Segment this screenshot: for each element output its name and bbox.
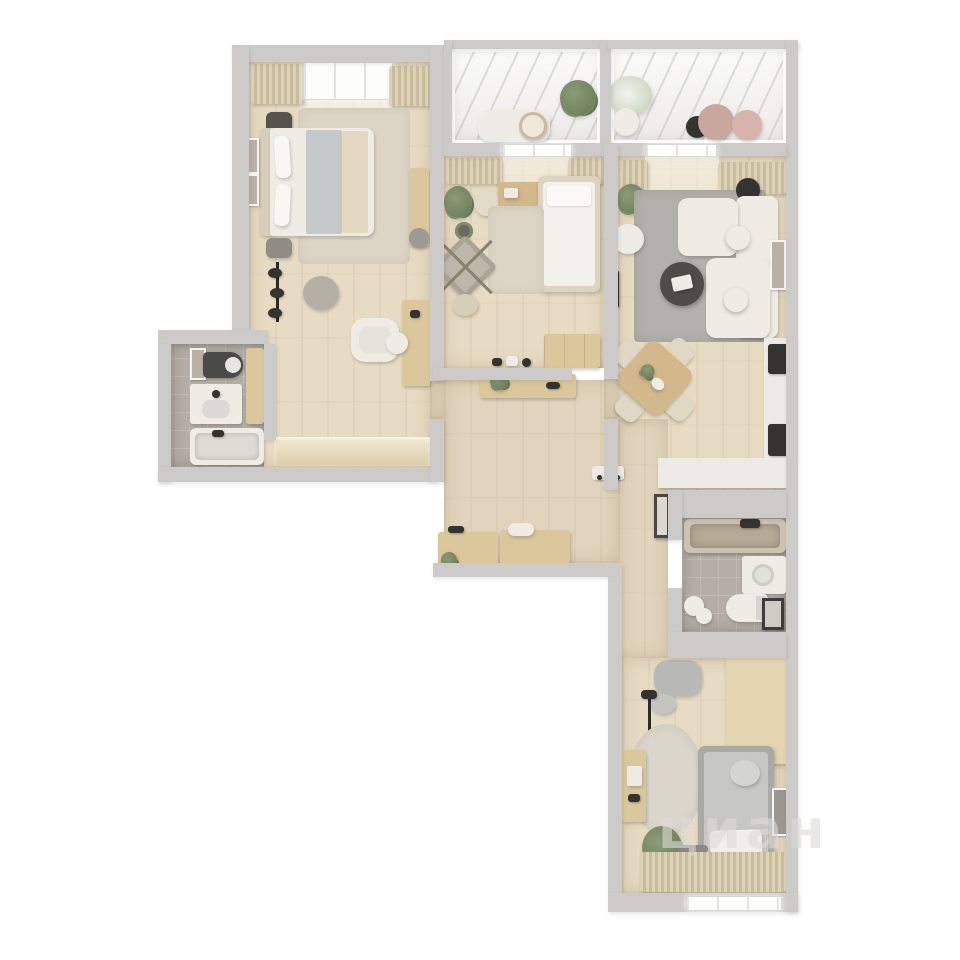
master-curtain-left — [251, 64, 305, 104]
sofa-round-pillow-1 — [726, 226, 750, 250]
toy-1 — [492, 358, 502, 366]
kids-plant — [444, 186, 472, 218]
master-bed — [270, 128, 374, 236]
master-skylight-window — [303, 62, 393, 100]
master-bed-blanket-gray — [306, 130, 342, 234]
tub-inner — [195, 433, 259, 460]
master-wardrobe — [274, 437, 430, 466]
kids-teepee — [436, 238, 496, 296]
master-bed-pillow-2 — [274, 184, 291, 227]
bedroom2-curtain-bottom — [640, 852, 786, 892]
hallway-console-decor — [546, 382, 560, 389]
bath1-faucet — [212, 390, 220, 398]
living-balcony-window — [645, 144, 717, 157]
bath2-tub-inner — [690, 524, 780, 548]
bedroom2-bed — [698, 746, 774, 864]
living-coffee-table — [660, 262, 704, 306]
kids-curtain-left — [446, 158, 502, 184]
wall-kids-right — [604, 143, 618, 379]
rack-item-1 — [268, 268, 282, 278]
wall-corridor-left — [608, 577, 622, 893]
shoes — [448, 526, 464, 533]
bedroom2-laptop — [627, 766, 642, 786]
bath2-vanity — [742, 556, 786, 594]
kids-rug — [488, 206, 544, 294]
kids-bed-pillow — [547, 186, 591, 206]
toilet-bowl — [225, 357, 241, 373]
bench-cushion — [508, 523, 534, 536]
wall-exterior-right — [786, 40, 798, 912]
wall-bath2-bottom — [668, 632, 786, 658]
wall-bath1-top — [158, 330, 268, 344]
wall-bath2-left-upper — [668, 490, 682, 540]
wall-bath1-left — [158, 344, 171, 482]
bath1-sink-counter — [190, 384, 242, 424]
wall-master-right — [430, 45, 444, 381]
master-bed-pillow-1 — [274, 136, 292, 179]
toy-3 — [522, 358, 531, 367]
wall-balcony-right-top — [608, 40, 798, 49]
balcony-left-plant — [560, 80, 596, 116]
master-curtain-right — [389, 66, 431, 106]
bath2-sink — [752, 564, 774, 586]
kids-desk-papers — [504, 188, 518, 198]
master-bed-throw-cream — [342, 131, 368, 233]
bath1-toilet — [203, 352, 243, 378]
balcony-right-lounge-1 — [698, 104, 734, 140]
coffee-table-book — [671, 274, 693, 292]
bedroom2-desk — [622, 750, 646, 822]
kids-desk — [498, 182, 540, 208]
wall-balcony-divider — [600, 40, 611, 144]
master-nightstand-bottom — [266, 238, 292, 258]
master-pouf — [303, 276, 339, 310]
kids-bed — [538, 176, 600, 292]
wall-dining-hall — [604, 419, 618, 490]
bedroom2-throw-pillow — [730, 760, 760, 786]
master-vanity-stool — [386, 332, 408, 354]
corridor-floor — [618, 419, 668, 658]
vanity-decor — [410, 310, 420, 318]
wall-bath2-left-lower — [668, 588, 682, 632]
doorway-master — [430, 381, 444, 419]
balcony-left-tray-table — [519, 112, 547, 140]
balcony-right-vase — [613, 108, 639, 136]
wall-exterior-bottom-left — [158, 467, 436, 482]
wall-bath1-right-upper — [264, 344, 276, 440]
hallway-bench — [500, 530, 570, 564]
bath2-mirror — [762, 598, 784, 630]
floorplan-render: циан — [0, 0, 960, 960]
kids-dresser — [544, 334, 600, 368]
bath1-bathtub — [190, 428, 264, 465]
rack-item-2 — [270, 288, 284, 298]
kitchen-counter — [658, 458, 786, 488]
living-wall-art — [770, 240, 786, 290]
master-clothes-rack — [266, 262, 288, 324]
master-stool — [409, 228, 429, 248]
kids-pouf — [452, 294, 478, 316]
balcony-right-lounge-2 — [732, 110, 762, 140]
bath1-shelf — [246, 348, 264, 424]
wall-balcony-left-top — [444, 40, 604, 49]
wall-master-left — [232, 45, 249, 337]
wall-kitchen-band — [680, 490, 786, 518]
kids-balcony-door-window — [502, 144, 572, 157]
bedroom2-desk-decor — [628, 794, 640, 802]
wall-master-top — [232, 45, 444, 62]
kids-toys — [492, 354, 536, 368]
bedroom2-armchair — [654, 660, 702, 696]
wall-kids-bottom — [433, 368, 572, 380]
bedroom2-window — [686, 896, 782, 911]
bath1-basin — [202, 400, 230, 418]
bedroom2-floor-lamp-head — [641, 690, 657, 699]
toy-2 — [506, 356, 518, 366]
dining-plate — [649, 375, 667, 393]
tub-shower-fixture — [212, 430, 224, 437]
wall-master-right-lower — [430, 419, 444, 482]
sofa-chaise-top — [678, 198, 738, 256]
bath2-shower-fixture — [740, 519, 760, 528]
bath2-towel-2 — [696, 608, 712, 624]
rack-item-3 — [268, 308, 282, 318]
wall-hall-bottom — [433, 563, 622, 577]
bath2-bathtub — [684, 519, 786, 553]
sofa-round-pillow-2 — [724, 288, 748, 312]
coat-hook-1 — [597, 475, 602, 480]
doorway-dining — [604, 379, 618, 419]
wall-balcony-left-edge — [444, 40, 452, 144]
